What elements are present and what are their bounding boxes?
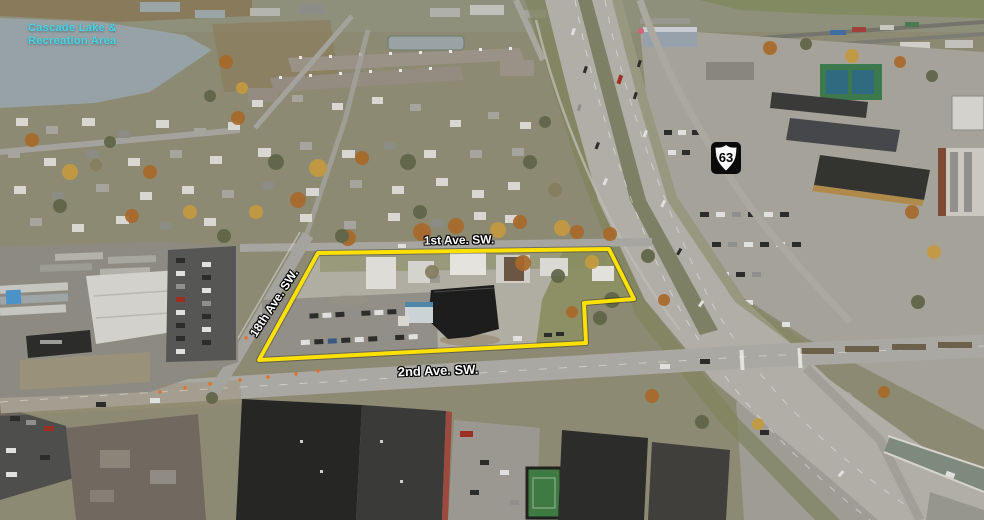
aerial-photo: Cascade Lake & Recreation Area 1st Ave. … bbox=[0, 0, 984, 520]
aerial-photo-scene bbox=[0, 0, 984, 520]
garden-center-west bbox=[0, 242, 238, 398]
